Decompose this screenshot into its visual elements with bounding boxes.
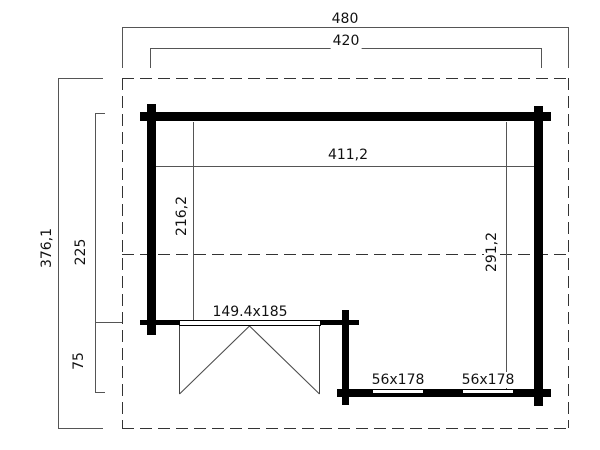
door-frame <box>179 320 321 326</box>
dim-label-window-left: 56x178 <box>370 372 427 388</box>
dim-label-porch-depth: 75 <box>71 350 87 372</box>
floor-plan-canvas: 480 420 376,1 225 75 411,2 216,2 291,2 1… <box>0 0 600 450</box>
door-leaf-right-diagonal <box>250 326 320 394</box>
dim-label-interior-width: 411,2 <box>326 147 370 163</box>
dim-label-roof-depth: 376,1 <box>39 226 55 270</box>
dim-label-wall-width: 420 <box>331 33 362 49</box>
window-right <box>462 389 514 394</box>
dim-label-door-size: 149.4x185 <box>210 304 289 320</box>
dim-label-window-right: 56x178 <box>460 372 517 388</box>
dim-label-roof-width: 480 <box>330 11 361 27</box>
dim-label-interior-depth-left: 216,2 <box>174 194 190 238</box>
dim-label-interior-depth-right: 291,2 <box>484 230 500 274</box>
door-leaf-left-diagonal <box>180 326 250 394</box>
dim-label-left-depth: 225 <box>73 237 89 268</box>
window-left <box>372 389 424 394</box>
